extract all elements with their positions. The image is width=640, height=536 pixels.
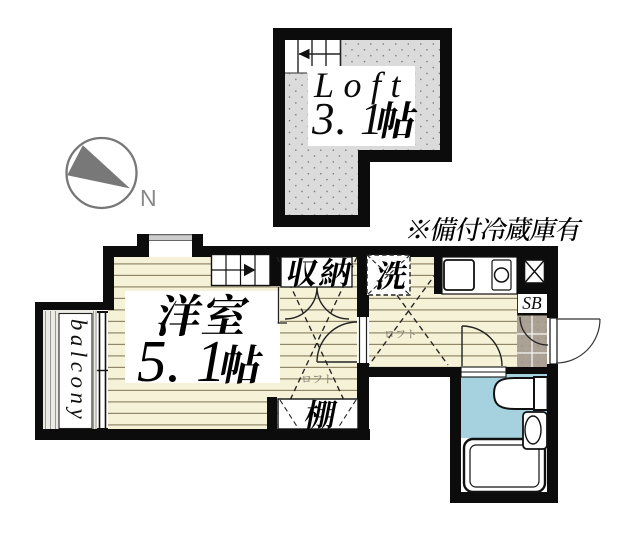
svg-text:5. 1: 5. 1	[137, 328, 226, 394]
svg-text:3. 1: 3. 1	[311, 94, 384, 144]
svg-text:N: N	[140, 185, 157, 211]
svg-text:balcony: balcony	[66, 319, 91, 423]
svg-text:SB: SB	[522, 293, 542, 313]
